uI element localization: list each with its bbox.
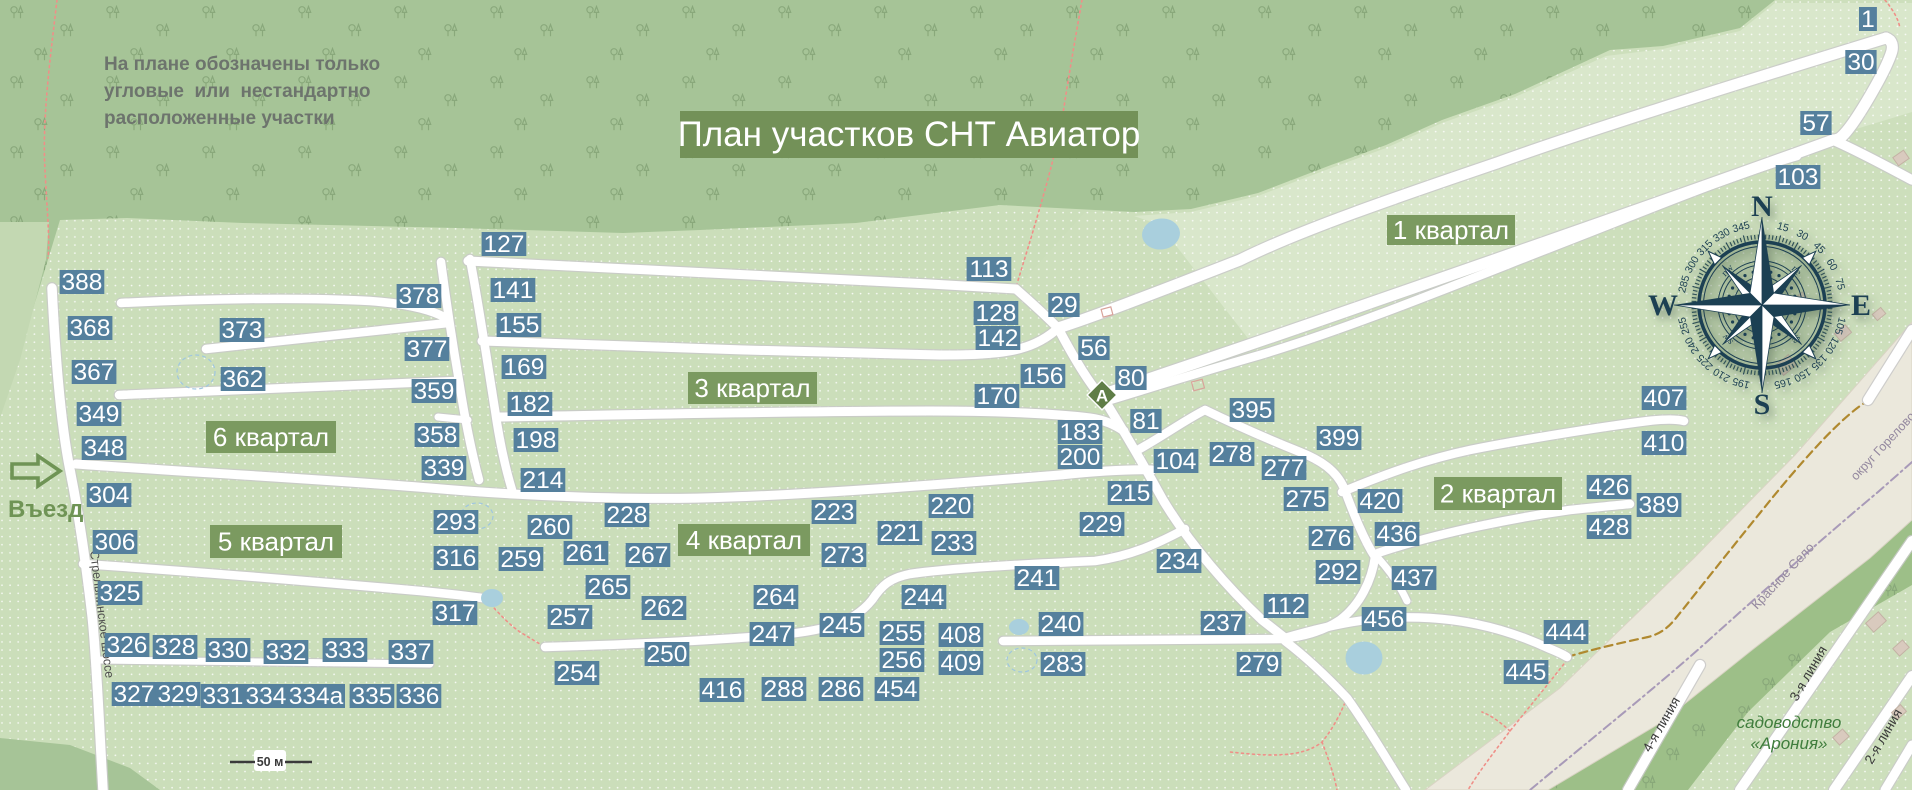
svg-text:245: 245 — [822, 612, 863, 639]
svg-text:349: 349 — [79, 401, 120, 428]
svg-text:368: 368 — [70, 315, 111, 342]
svg-text:257: 257 — [550, 604, 591, 631]
svg-text:223: 223 — [814, 499, 855, 526]
svg-text:80: 80 — [1117, 365, 1144, 392]
svg-text:расположенные участки: расположенные участки — [104, 108, 335, 129]
svg-text:304: 304 — [89, 482, 130, 509]
svg-text:104: 104 — [1156, 448, 1197, 475]
svg-text:288: 288 — [764, 676, 805, 703]
svg-text:367: 367 — [74, 359, 115, 386]
svg-text:454: 454 — [877, 676, 918, 703]
svg-text:445: 445 — [1506, 659, 1547, 686]
svg-text:416: 416 — [702, 677, 743, 704]
svg-text:362: 362 — [223, 366, 264, 393]
svg-text:233: 233 — [934, 530, 975, 557]
svg-text:81: 81 — [1132, 408, 1159, 435]
svg-text:276: 276 — [1311, 525, 1352, 552]
svg-text:316: 316 — [436, 545, 477, 572]
svg-text:183: 183 — [1060, 419, 1101, 446]
svg-text:N: N — [1751, 190, 1773, 223]
svg-text:215: 215 — [1110, 480, 1151, 507]
svg-text:279: 279 — [1239, 651, 1280, 678]
svg-text:Въезд: Въезд — [8, 496, 83, 523]
svg-text:334: 334 — [246, 683, 287, 710]
svg-text:112: 112 — [1266, 593, 1305, 620]
svg-text:334а: 334а — [289, 683, 344, 710]
svg-text:444: 444 — [1546, 619, 1587, 646]
svg-text:420: 420 — [1360, 488, 1401, 515]
svg-text:331: 331 — [203, 683, 244, 710]
svg-text:336: 336 — [399, 683, 440, 710]
svg-text:угловые или нестандартно: угловые или нестандартно — [104, 81, 371, 102]
svg-text:113: 113 — [969, 256, 1008, 283]
svg-text:1: 1 — [1861, 6, 1875, 33]
svg-text:247: 247 — [752, 621, 793, 648]
svg-text:337: 337 — [391, 639, 432, 666]
svg-text:221: 221 — [880, 520, 921, 547]
svg-text:142: 142 — [978, 325, 1019, 352]
svg-text:317: 317 — [435, 600, 476, 627]
svg-text:286: 286 — [821, 676, 862, 703]
svg-text:«Арония»: «Арония» — [1750, 734, 1827, 753]
svg-text:283: 283 — [1043, 651, 1084, 678]
svg-text:426: 426 — [1589, 474, 1630, 501]
svg-text:259: 259 — [501, 546, 542, 573]
svg-text:327: 327 — [114, 681, 155, 708]
svg-text:255: 255 — [882, 620, 923, 647]
svg-text:214: 214 — [523, 467, 564, 494]
svg-text:306: 306 — [95, 529, 136, 556]
svg-text:182: 182 — [510, 391, 551, 418]
svg-text:6 квартал: 6 квартал — [213, 422, 329, 452]
svg-text:198: 198 — [516, 427, 557, 454]
svg-text:456: 456 — [1364, 606, 1405, 633]
svg-text:373: 373 — [222, 317, 263, 344]
svg-text:3 квартал: 3 квартал — [694, 373, 810, 403]
svg-text:57: 57 — [1802, 110, 1829, 137]
svg-text:170: 170 — [977, 383, 1018, 410]
svg-text:A: A — [1096, 387, 1108, 406]
svg-text:1 квартал: 1 квартал — [1393, 215, 1509, 245]
svg-text:275: 275 — [1286, 486, 1327, 513]
svg-text:436: 436 — [1377, 521, 1418, 548]
svg-text:250: 250 — [647, 641, 688, 668]
svg-text:273: 273 — [824, 542, 865, 569]
svg-text:264: 264 — [756, 584, 797, 611]
svg-text:169: 169 — [504, 354, 545, 381]
svg-text:156: 156 — [1023, 363, 1064, 390]
svg-text:326: 326 — [107, 632, 148, 659]
svg-text:358: 358 — [417, 422, 458, 449]
svg-text:333: 333 — [325, 637, 366, 664]
svg-text:395: 395 — [1232, 397, 1273, 424]
svg-text:262: 262 — [644, 595, 685, 622]
svg-text:388: 388 — [62, 269, 103, 296]
svg-text:408: 408 — [941, 622, 982, 649]
svg-text:127: 127 — [484, 231, 525, 258]
svg-text:377: 377 — [407, 336, 448, 363]
svg-text:50 м: 50 м — [257, 755, 284, 769]
svg-text:56: 56 — [1080, 335, 1107, 362]
svg-text:На плане обозначены только: На плане обозначены только — [104, 54, 380, 75]
svg-text:256: 256 — [882, 647, 923, 674]
svg-text:292: 292 — [1318, 559, 1359, 586]
svg-text:378: 378 — [399, 283, 440, 310]
svg-text:332: 332 — [266, 639, 307, 666]
svg-text:29: 29 — [1050, 292, 1077, 319]
svg-text:359: 359 — [414, 378, 455, 405]
svg-text:329: 329 — [158, 681, 199, 708]
svg-text:30: 30 — [1847, 49, 1874, 76]
svg-text:339: 339 — [424, 455, 465, 482]
svg-text:348: 348 — [84, 435, 125, 462]
svg-text:410: 410 — [1644, 430, 1685, 457]
svg-text:S: S — [1754, 388, 1771, 421]
svg-text:389: 389 — [1639, 492, 1680, 519]
svg-text:261: 261 — [566, 540, 607, 567]
svg-text:228: 228 — [607, 502, 648, 529]
svg-text:128: 128 — [976, 300, 1017, 327]
svg-text:200: 200 — [1060, 444, 1101, 471]
svg-text:260: 260 — [530, 514, 571, 541]
svg-text:237: 237 — [1203, 610, 1244, 637]
svg-text:277: 277 — [1264, 455, 1305, 482]
svg-text:335: 335 — [352, 683, 393, 710]
svg-text:План участков СНТ Авиатор: План участков СНТ Авиатор — [678, 115, 1141, 154]
svg-text:254: 254 — [557, 660, 598, 687]
svg-text:409: 409 — [941, 650, 982, 677]
svg-text:садоводство: садоводство — [1737, 713, 1842, 732]
svg-text:141: 141 — [493, 277, 534, 304]
svg-text:5 квартал: 5 квартал — [218, 527, 334, 557]
svg-text:4 квартал: 4 квартал — [686, 525, 802, 555]
svg-text:241: 241 — [1017, 565, 1058, 592]
svg-text:244: 244 — [904, 584, 945, 611]
svg-text:240: 240 — [1041, 611, 1082, 638]
svg-text:407: 407 — [1644, 385, 1685, 412]
svg-text:E: E — [1851, 289, 1871, 322]
svg-text:437: 437 — [1394, 565, 1435, 592]
svg-text:103: 103 — [1778, 164, 1819, 191]
svg-text:W: W — [1648, 289, 1678, 322]
svg-text:155: 155 — [499, 312, 540, 339]
svg-text:325: 325 — [100, 580, 141, 607]
svg-text:399: 399 — [1319, 425, 1360, 452]
svg-text:2 квартал: 2 квартал — [1440, 479, 1556, 509]
svg-text:220: 220 — [931, 493, 972, 520]
svg-text:293: 293 — [436, 509, 477, 536]
svg-text:234: 234 — [1159, 548, 1200, 575]
svg-text:267: 267 — [628, 542, 669, 569]
svg-text:328: 328 — [155, 634, 196, 661]
svg-text:330: 330 — [208, 637, 249, 664]
svg-text:278: 278 — [1212, 441, 1253, 468]
svg-text:229: 229 — [1082, 511, 1123, 538]
svg-text:428: 428 — [1589, 514, 1630, 541]
svg-text:265: 265 — [588, 574, 629, 601]
